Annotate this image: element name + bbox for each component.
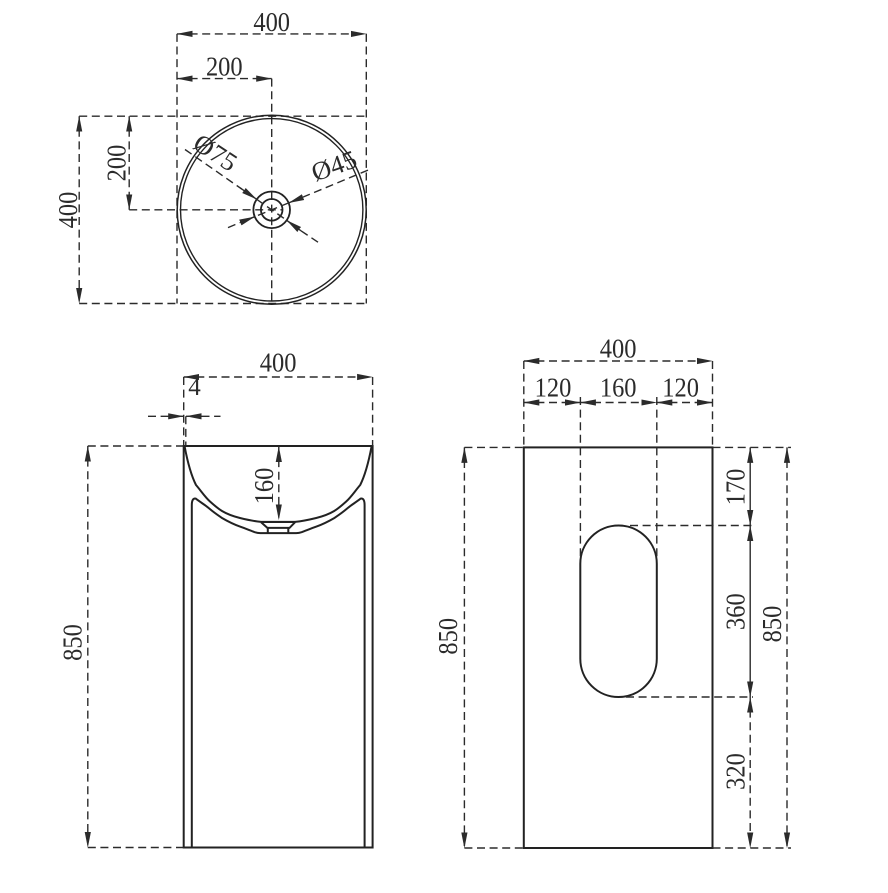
svg-text:120: 120 xyxy=(535,372,572,403)
svg-text:360: 360 xyxy=(720,593,751,630)
svg-text:4: 4 xyxy=(188,374,201,401)
svg-text:200: 200 xyxy=(100,145,131,182)
svg-text:160: 160 xyxy=(600,372,637,403)
svg-text:850: 850 xyxy=(756,606,787,643)
svg-text:Ø45: Ø45 xyxy=(308,145,361,188)
svg-text:850: 850 xyxy=(56,624,87,661)
svg-text:170: 170 xyxy=(720,469,751,506)
svg-text:200: 200 xyxy=(206,50,243,81)
svg-text:400: 400 xyxy=(52,192,83,229)
svg-text:400: 400 xyxy=(260,347,297,378)
svg-text:120: 120 xyxy=(662,372,699,403)
svg-text:400: 400 xyxy=(600,333,637,364)
svg-text:320: 320 xyxy=(720,753,751,790)
svg-text:400: 400 xyxy=(253,6,290,37)
svg-text:Ø75: Ø75 xyxy=(188,128,242,177)
svg-text:850: 850 xyxy=(432,618,463,655)
svg-text:160: 160 xyxy=(248,468,279,505)
